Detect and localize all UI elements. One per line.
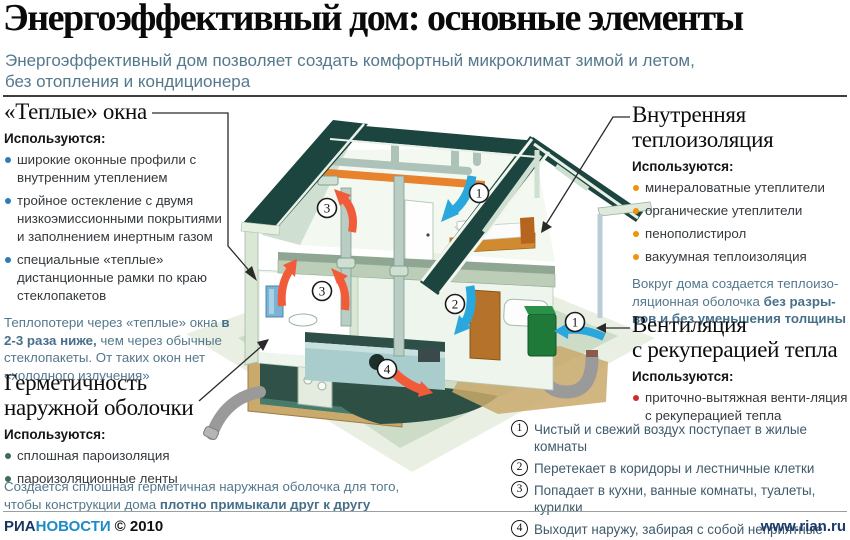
tv-box bbox=[418, 348, 440, 362]
section-title: «Теплые» окна bbox=[4, 99, 230, 124]
marker-2: 2 bbox=[446, 295, 465, 314]
left-wall bbox=[245, 221, 258, 365]
bullet-item: приточно-вытяжная венти-ляция с рекупера… bbox=[632, 389, 848, 425]
marker-1b: 1 bbox=[566, 313, 585, 332]
page-subtitle: Энергоэффективный дом позволяет создать … bbox=[5, 50, 805, 92]
step-text: Чистый и свежий воздух поступает в жилые… bbox=[534, 421, 849, 455]
svg-text:3: 3 bbox=[319, 284, 326, 299]
step-number: 3 bbox=[511, 481, 528, 498]
step-number: 4 bbox=[511, 520, 528, 537]
pipe-joint bbox=[586, 350, 598, 357]
bullet-list: широкие оконные профили с внутренним уте… bbox=[4, 151, 230, 305]
uses-label: Используются: bbox=[632, 159, 848, 174]
bullet-item: тройное остекление с двумя низкоэмиссион… bbox=[4, 192, 230, 246]
bullet-list: приточно-вытяжная венти-ляция с рекупера… bbox=[632, 389, 848, 425]
subtitle-line1: Энергоэффективный дом позволяет создать … bbox=[5, 51, 695, 70]
infographic-page: 1 2 3 3 4 1 Энергоэффективный дом: основ… bbox=[0, 0, 850, 540]
svg-text:1: 1 bbox=[572, 315, 579, 330]
svg-text:1: 1 bbox=[476, 186, 483, 201]
white-door bbox=[405, 200, 433, 266]
marker-3a: 3 bbox=[318, 199, 337, 218]
svg-text:3: 3 bbox=[324, 201, 331, 216]
section-sealing: Герметичностьнаружной оболочки Использую… bbox=[4, 370, 234, 493]
marker-4: 4 bbox=[378, 360, 397, 379]
bullet-list: минераловатные утеплители органические у… bbox=[632, 179, 848, 266]
airflow-step: 2 Перетекает в коридоры и лестничные кле… bbox=[511, 460, 849, 477]
bullet-item: минераловатные утеплители bbox=[632, 179, 848, 197]
marker-3b: 3 bbox=[313, 282, 332, 301]
section-warm-windows: «Теплые» окна Используются: широкие окон… bbox=[4, 99, 230, 384]
header-divider bbox=[3, 95, 847, 97]
bullet-item: пенополистирол bbox=[632, 225, 848, 243]
ria-novosti-logo: РИАНОВОСТИ© 2010 bbox=[4, 518, 163, 535]
step-number: 2 bbox=[511, 459, 528, 476]
uses-label: Используются: bbox=[4, 427, 234, 442]
section-title: Внутренняятеплоизоляция bbox=[632, 102, 848, 152]
sealing-note: Создается сплошная герметичная наружная … bbox=[4, 478, 436, 513]
bullet-item: специальные «теплые» дистанционные рамки… bbox=[4, 251, 230, 305]
airflow-step: 1 Чистый и свежий воздух поступает в жил… bbox=[511, 421, 849, 455]
section-title: Герметичностьнаружной оболочки bbox=[4, 370, 234, 420]
marker-1: 1 bbox=[470, 184, 489, 203]
ventilation-unit bbox=[524, 306, 556, 356]
step-number: 1 bbox=[511, 420, 528, 437]
uses-label: Используются: bbox=[632, 369, 848, 384]
bullet-item: органические утеплители bbox=[632, 202, 848, 220]
subtitle-line2: без отопления и кондиционера bbox=[5, 72, 250, 91]
bullet-item: вакуумная теплоизоляция bbox=[632, 248, 848, 266]
sink bbox=[289, 314, 317, 326]
step-text: Перетекает в коридоры и лестничные клетк… bbox=[534, 460, 814, 477]
section-title: Вентиляцияс рекуперацией тепла bbox=[632, 312, 848, 362]
svg-text:4: 4 bbox=[384, 362, 391, 377]
uses-label: Используются: bbox=[4, 131, 230, 146]
bullet-item: сплошная пароизоляция bbox=[4, 447, 234, 465]
footer-divider bbox=[3, 511, 847, 512]
page-title: Энергоэффективный дом: основные элементы bbox=[3, 0, 849, 40]
svg-text:2: 2 bbox=[452, 297, 459, 312]
section-ventilation: Вентиляцияс рекуперацией тепла Использую… bbox=[632, 312, 848, 430]
bullet-item: широкие оконные профили с внутренним уте… bbox=[4, 151, 230, 187]
section-insulation: Внутренняятеплоизоляция Используются: ми… bbox=[632, 102, 848, 328]
website-link[interactable]: www.rian.ru bbox=[761, 518, 846, 535]
